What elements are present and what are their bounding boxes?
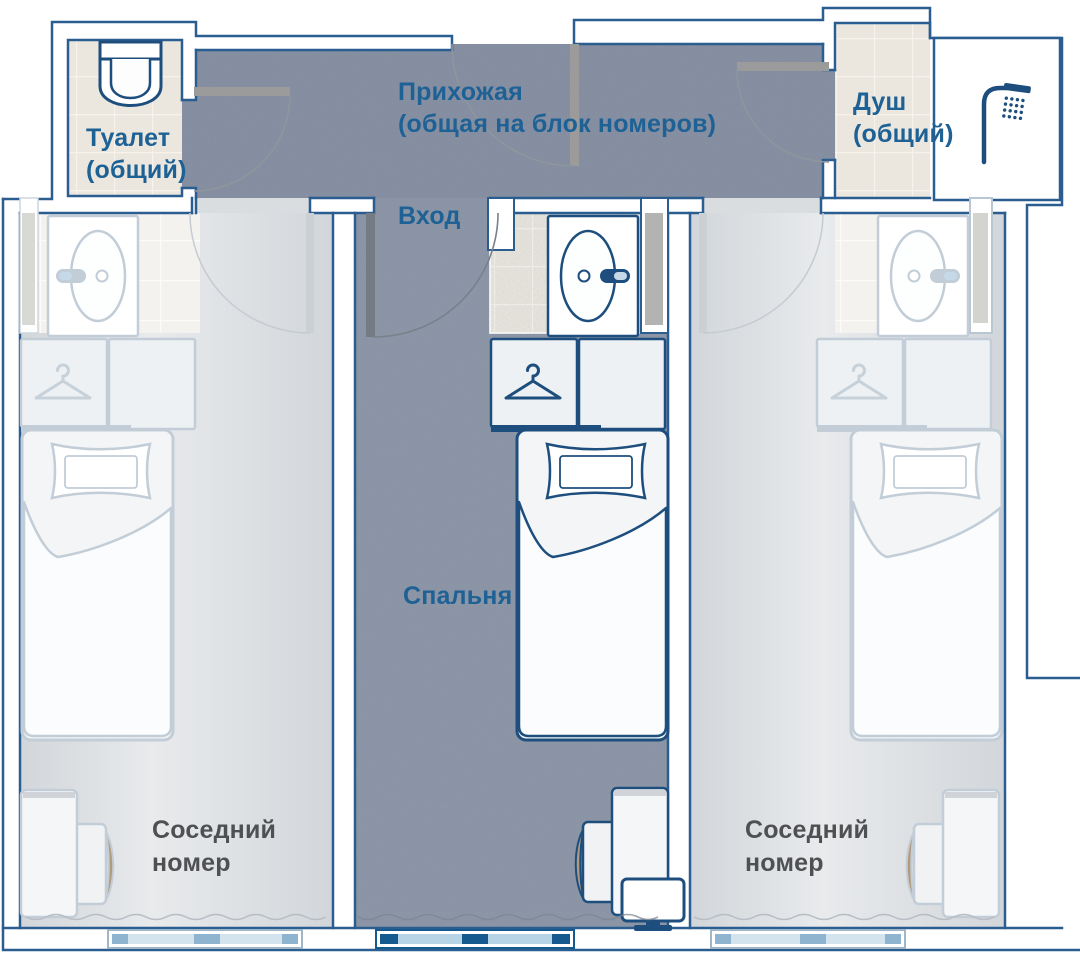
bedroom-door-leaf: [366, 213, 375, 337]
sink-icon: [548, 216, 638, 336]
window: [711, 930, 905, 948]
windows: [108, 930, 905, 948]
sink-icon: [48, 216, 138, 336]
wardrobe: [21, 339, 195, 432]
shower-door-leaf: [737, 62, 829, 71]
bed: [22, 430, 173, 740]
neighbor-right-label: Соседний номер: [745, 814, 869, 880]
neighbor-left-label: Соседний номер: [152, 814, 276, 880]
toilet-label: Туалет (общий): [86, 122, 187, 186]
hallway-label: Прихожая (общая на блок номеров): [398, 76, 716, 140]
toilet-icon: [100, 42, 161, 106]
entrance-label: Вход: [398, 200, 461, 232]
window: [376, 930, 574, 948]
wardrobe: [491, 339, 665, 432]
bedroom-label: Спальня: [403, 580, 512, 612]
window: [108, 930, 302, 948]
hallway-label-line1: Прихожая: [398, 76, 716, 108]
toilet-door-leaf: [194, 87, 290, 96]
bed: [851, 430, 1002, 740]
wardrobe: [817, 339, 991, 432]
hallway-label-line2: (общая на блок номеров): [398, 108, 716, 140]
floorplan: Прихожая (общая на блок номеров) Вход Ту…: [0, 0, 1080, 955]
bed: [517, 430, 668, 740]
sink-icon: [878, 216, 968, 336]
shower-label: Душ (общий): [853, 86, 954, 150]
wall-stub: [488, 198, 514, 250]
